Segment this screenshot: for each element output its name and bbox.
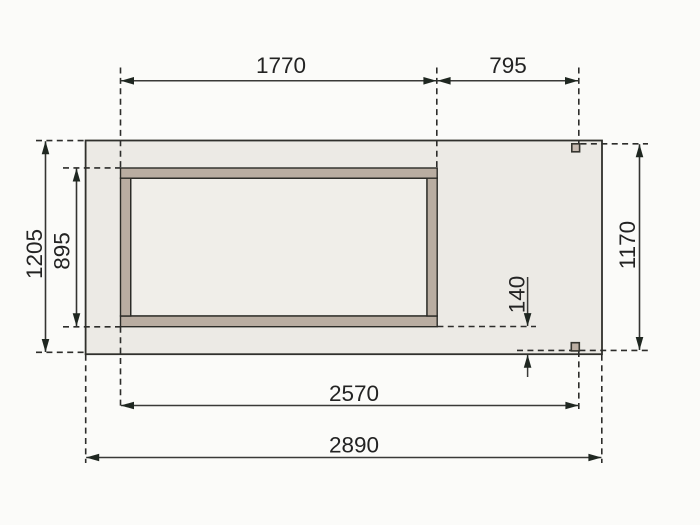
svg-text:2570: 2570 xyxy=(329,381,379,406)
svg-text:2890: 2890 xyxy=(329,433,379,458)
svg-text:1205: 1205 xyxy=(22,229,47,279)
svg-text:140: 140 xyxy=(505,276,530,314)
svg-text:1770: 1770 xyxy=(256,53,306,78)
svg-text:895: 895 xyxy=(50,232,75,270)
svg-text:1170: 1170 xyxy=(615,221,640,269)
svg-text:795: 795 xyxy=(489,53,527,78)
